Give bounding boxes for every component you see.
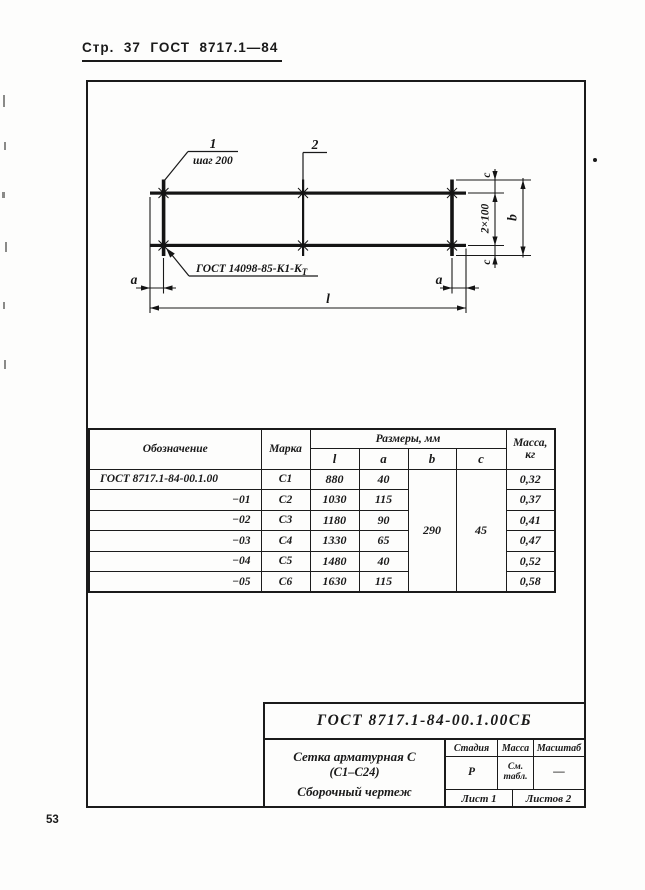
cell-mass: 0,32	[506, 469, 555, 490]
cell-designation: −05	[89, 572, 261, 593]
cell-designation: ГОСТ 8717.1-84-00.1.00	[89, 469, 261, 490]
cell-mark: С1	[261, 469, 310, 490]
cell-designation: −02	[89, 510, 261, 531]
col-header-c: c	[456, 448, 506, 469]
mass-value-line2: табл.	[504, 773, 528, 783]
cell-mark: С6	[261, 572, 310, 593]
mass-value: См.табл.	[498, 757, 534, 790]
cell-a: 90	[359, 510, 408, 531]
cell-designation: −04	[89, 551, 261, 572]
cell-mark: С2	[261, 490, 310, 511]
cell-l: 1480	[310, 551, 359, 572]
drawing-name-line1: Сетка арматурная С	[293, 749, 415, 765]
cell-a: 115	[359, 572, 408, 593]
col-header-mass: Масса,кг	[506, 429, 555, 469]
specification-table: Обозначение Марка Размеры, мм Масса,кг l…	[88, 428, 556, 593]
cell-c-shared: 45	[456, 469, 506, 592]
page-header: Стр. 37 ГОСТ 8717.1—84	[82, 40, 282, 62]
scanned-standard-page: Стр. 37 ГОСТ 8717.1—84	[0, 0, 645, 890]
cell-mark: С3	[261, 510, 310, 531]
stage-label: Стадия	[446, 740, 498, 757]
table-row: ГОСТ 8717.1-84-00.1.00 С1 880 40 290 45 …	[89, 469, 555, 490]
col-header-l: l	[310, 448, 359, 469]
cell-mass: 0,41	[506, 510, 555, 531]
cell-designation: −01	[89, 490, 261, 511]
mass-header-line2: кг	[525, 449, 535, 461]
stage-value: Р	[446, 757, 498, 790]
cell-mark: С5	[261, 551, 310, 572]
col-header-b: b	[408, 448, 456, 469]
mass-label: Масса	[498, 740, 534, 757]
col-header-designation: Обозначение	[89, 429, 261, 469]
cell-designation: −03	[89, 531, 261, 552]
scan-artifact	[4, 142, 6, 150]
sheets-total: Листов 2	[513, 790, 584, 808]
scan-artifact	[4, 360, 6, 369]
cell-mass: 0,37	[506, 490, 555, 511]
cell-l: 1180	[310, 510, 359, 531]
cell-mass: 0,58	[506, 572, 555, 593]
title-block: ГОСТ 8717.1-84-00.1.00СБ Сетка арматурна…	[263, 702, 586, 808]
mass-header-line1: Масса,	[513, 437, 547, 449]
scan-artifact	[3, 95, 5, 107]
drawing-name: Сетка арматурная С (С1–С24) Сборочный че…	[265, 740, 446, 808]
cell-mass: 0,52	[506, 551, 555, 572]
scan-artifact	[3, 302, 5, 309]
col-header-dimensions: Размеры, мм	[310, 429, 506, 448]
title-block-stamp: Стадия Масса Масштаб Р См.табл. — Лист 1…	[446, 740, 584, 808]
page-number: 53	[46, 814, 59, 826]
cell-a: 65	[359, 531, 408, 552]
scan-artifact	[5, 242, 7, 252]
cell-mass: 0,47	[506, 531, 555, 552]
cell-a: 40	[359, 469, 408, 490]
scan-artifact-dot	[593, 158, 597, 162]
cell-a: 115	[359, 490, 408, 511]
cell-l: 1330	[310, 531, 359, 552]
col-header-a: a	[359, 448, 408, 469]
scale-label: Масштаб	[534, 740, 584, 757]
scale-value: —	[534, 757, 584, 790]
cell-mark: С4	[261, 531, 310, 552]
sheet-number: Лист 1	[446, 790, 513, 808]
col-header-mark: Марка	[261, 429, 310, 469]
cell-l: 1630	[310, 572, 359, 593]
cell-a: 40	[359, 551, 408, 572]
document-number: ГОСТ 8717.1-84-00.1.00СБ	[265, 704, 584, 740]
drawing-name-line3: Сборочный чертеж	[297, 784, 411, 800]
drawing-name-line2: (С1–С24)	[330, 765, 380, 780]
cell-l: 880	[310, 469, 359, 490]
cell-l: 1030	[310, 490, 359, 511]
cell-b-shared: 290	[408, 469, 456, 592]
scan-artifact	[2, 192, 5, 198]
